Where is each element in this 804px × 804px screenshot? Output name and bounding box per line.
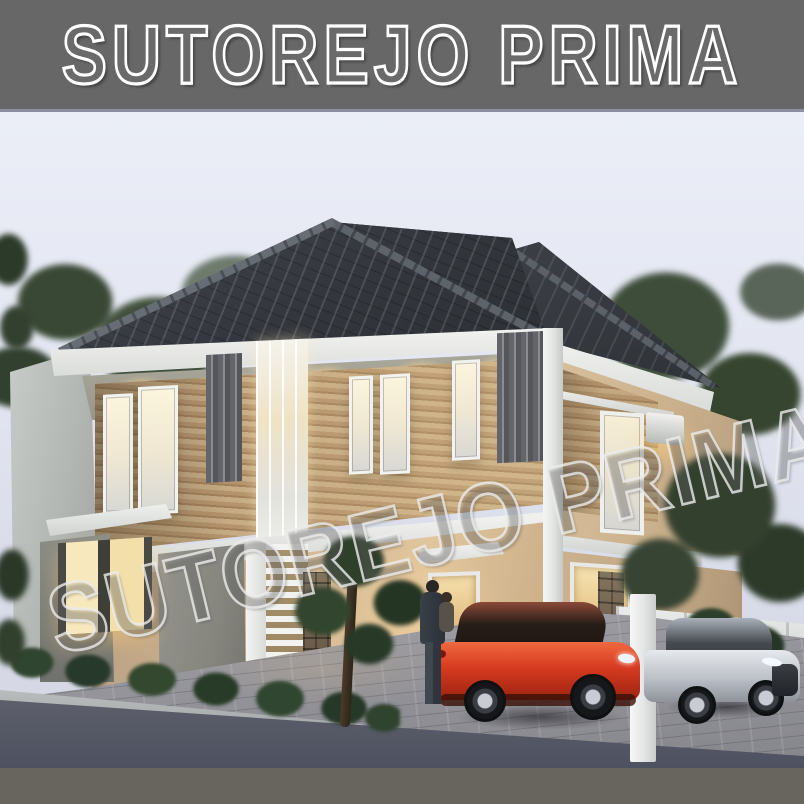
suv-grille <box>772 664 798 696</box>
red-car-rear-wheel <box>464 680 506 722</box>
foreground-leaves-bottom-left <box>0 527 42 687</box>
front-tree-foliage <box>284 512 439 677</box>
suv-rear-wheel <box>678 686 716 724</box>
upper-window-2 <box>138 385 178 515</box>
upper-window-5 <box>452 359 480 460</box>
upper-window-4 <box>380 373 410 475</box>
title-text: SUTOREJO PRIMA <box>62 7 743 102</box>
upper-window-1 <box>103 393 133 515</box>
upper-window-3 <box>349 375 373 474</box>
red-car-front-wheel <box>570 674 616 720</box>
louver-panel-2 <box>497 331 547 464</box>
silver-suv <box>644 618 800 724</box>
child <box>437 592 457 634</box>
foreground-leaves-top-left <box>0 217 47 387</box>
bottom-bar <box>0 768 804 804</box>
child-body <box>439 602 454 632</box>
red-sports-car <box>434 598 642 726</box>
louver-panel-1 <box>206 353 242 483</box>
real-estate-poster: SUTOREJO PRIMA <box>0 0 804 804</box>
title-bar: SUTOREJO PRIMA <box>0 0 804 112</box>
render-scene: SUTOREJO PRIMA <box>0 112 804 768</box>
man-legs <box>425 642 441 704</box>
